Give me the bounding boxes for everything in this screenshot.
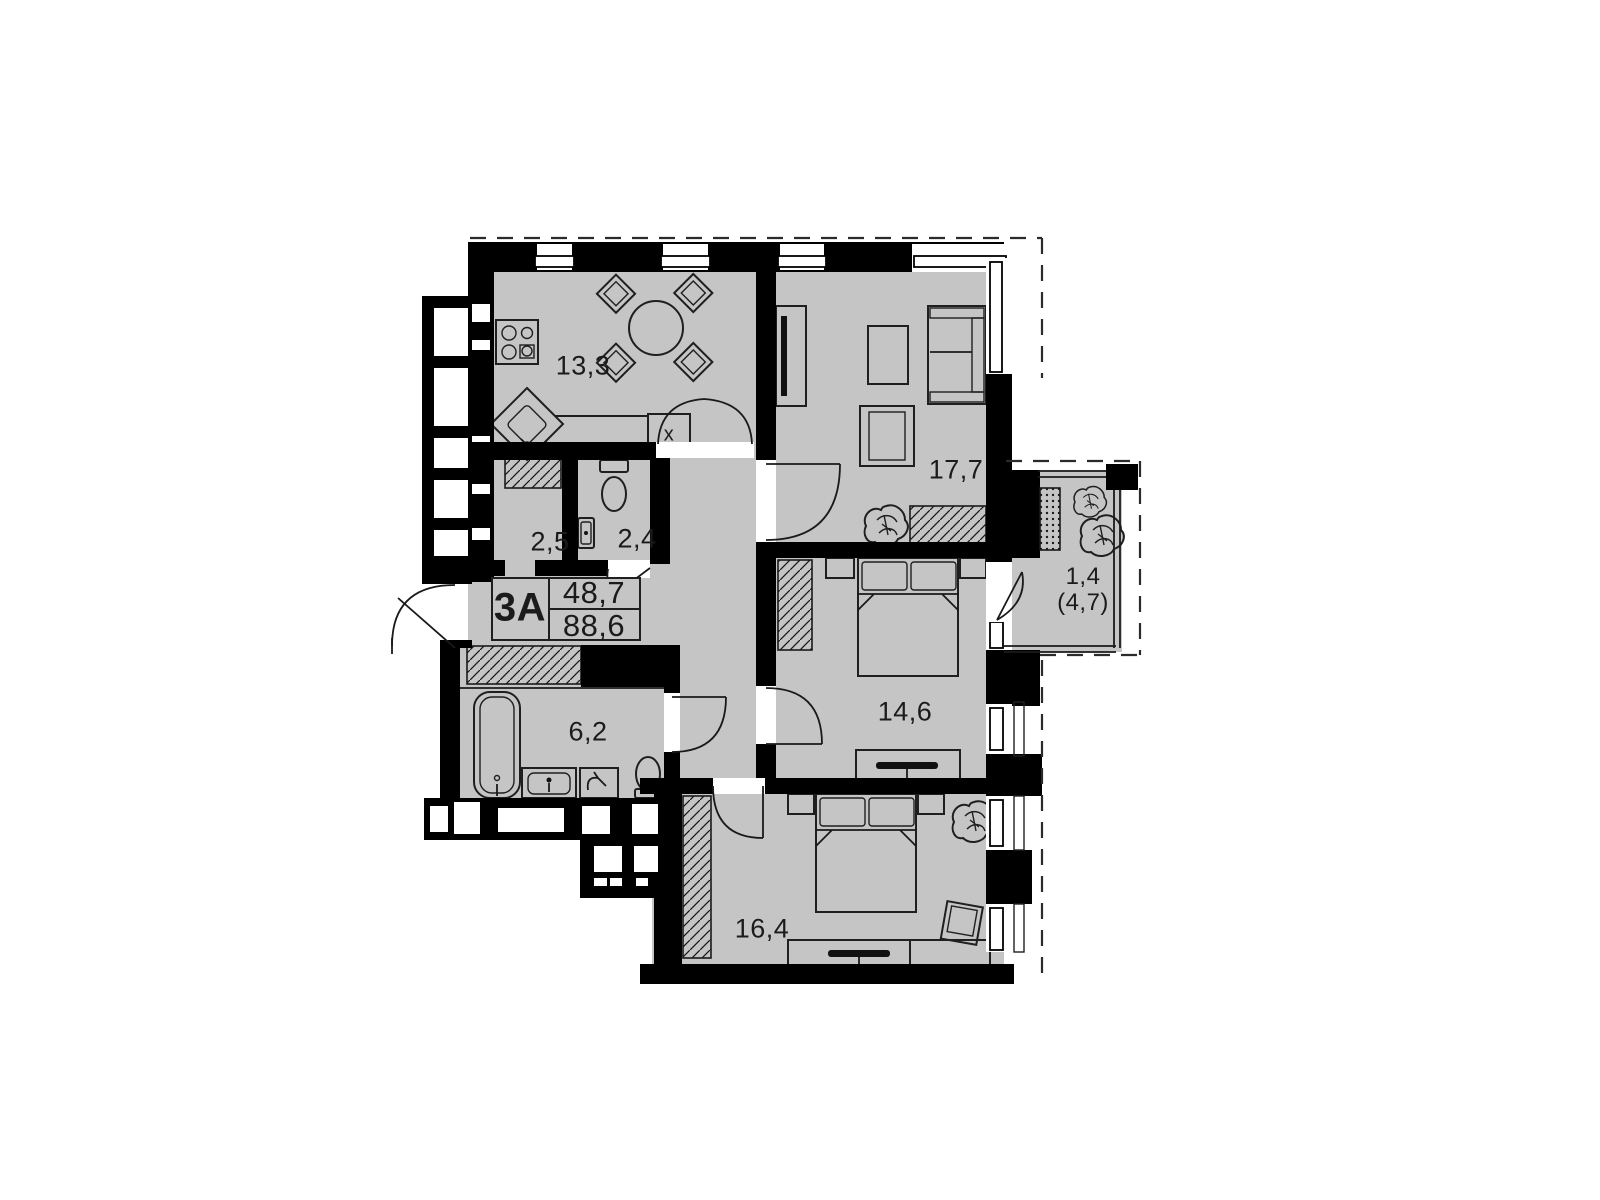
hall-wardrobe-hatch xyxy=(467,646,581,684)
balcony-area-label: 1,4 xyxy=(1066,563,1101,591)
armchair xyxy=(941,901,983,945)
nightstand xyxy=(960,558,986,578)
total-area-label: 88,6 xyxy=(563,608,625,644)
wall-sink xyxy=(578,518,594,548)
unit-code-label: 3A xyxy=(494,586,546,631)
bedroom2-wardrobe-hatch xyxy=(683,796,711,958)
closet-shelf-hatch xyxy=(505,456,561,488)
sofa xyxy=(928,306,986,404)
toilet xyxy=(600,460,628,511)
window xyxy=(535,244,574,270)
bathtub xyxy=(474,692,520,798)
window xyxy=(778,244,826,270)
kitchen-area-label: 13,3 xyxy=(556,351,611,382)
tv-icon xyxy=(876,762,938,769)
nightstand xyxy=(788,794,814,814)
nightstand xyxy=(826,558,854,578)
living-area-label: 17,7 xyxy=(929,455,984,486)
double-bed xyxy=(816,794,916,912)
tv-icon xyxy=(828,950,890,957)
wc-area-label: 2,4 xyxy=(617,524,656,555)
living-area-total: 48,7 xyxy=(563,575,625,611)
balcony-panel xyxy=(1040,488,1060,550)
armchair xyxy=(860,406,914,466)
tv-icon xyxy=(781,316,787,396)
window xyxy=(986,702,1024,756)
double-bed xyxy=(858,558,958,676)
bathroom-area-label: 6,2 xyxy=(568,717,607,748)
window xyxy=(661,244,710,270)
balcony-area-secondary: (4,7) xyxy=(1057,589,1109,617)
living-wardrobe-hatch xyxy=(910,506,986,544)
nightstand xyxy=(918,794,944,814)
kitchen-unit-marker: x xyxy=(664,424,675,447)
bedroom1-area-label: 14,6 xyxy=(878,697,933,728)
window xyxy=(986,904,1024,952)
window xyxy=(986,796,1024,850)
bedroom2-area-label: 16,4 xyxy=(735,914,790,945)
floorplan-drawing xyxy=(0,0,1600,1200)
floorplan-page: 13,3 17,7 2,5 2,4 14,6 6,2 16,4 1,4 (4,7… xyxy=(0,0,1600,1200)
bedroom1-wardrobe-hatch xyxy=(778,560,812,650)
closet-area-label: 2,5 xyxy=(530,527,569,558)
